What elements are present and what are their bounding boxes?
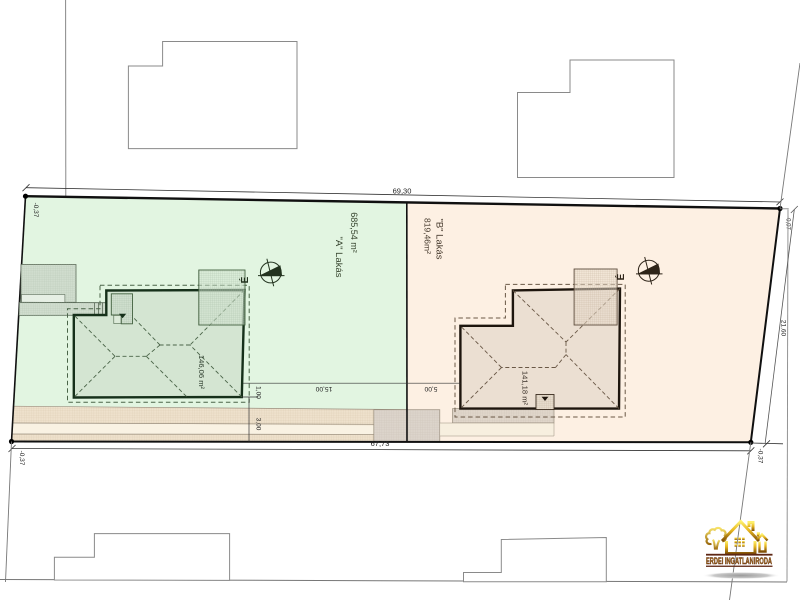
svg-text:819,46m²: 819,46m² (422, 218, 432, 254)
svg-text:15,00: 15,00 (315, 385, 332, 392)
svg-text:141,18 m²: 141,18 m² (521, 371, 530, 406)
svg-text:685,54 m²: 685,54 m² (349, 212, 359, 253)
svg-text:-0,37: -0,37 (18, 451, 25, 466)
svg-text:É: É (614, 273, 627, 280)
svg-text:3,00: 3,00 (255, 418, 262, 431)
svg-text:1,00: 1,00 (255, 386, 262, 399)
svg-text:69,30: 69,30 (393, 187, 412, 196)
svg-text:ERDEI INGATLANIRODA: ERDEI INGATLANIRODA (706, 556, 772, 567)
svg-text:5,00: 5,00 (424, 385, 437, 392)
svg-text:146,06 m²: 146,06 m² (197, 355, 206, 390)
svg-text:"A" Lakás: "A" Lakás (333, 236, 344, 277)
svg-text:"B" Lakás: "B" Lakás (434, 218, 445, 259)
svg-text:-0,37: -0,37 (757, 449, 764, 464)
svg-text:-0,37: -0,37 (32, 203, 39, 218)
svg-text:É: É (238, 276, 251, 283)
svg-text:67,73: 67,73 (371, 439, 390, 448)
